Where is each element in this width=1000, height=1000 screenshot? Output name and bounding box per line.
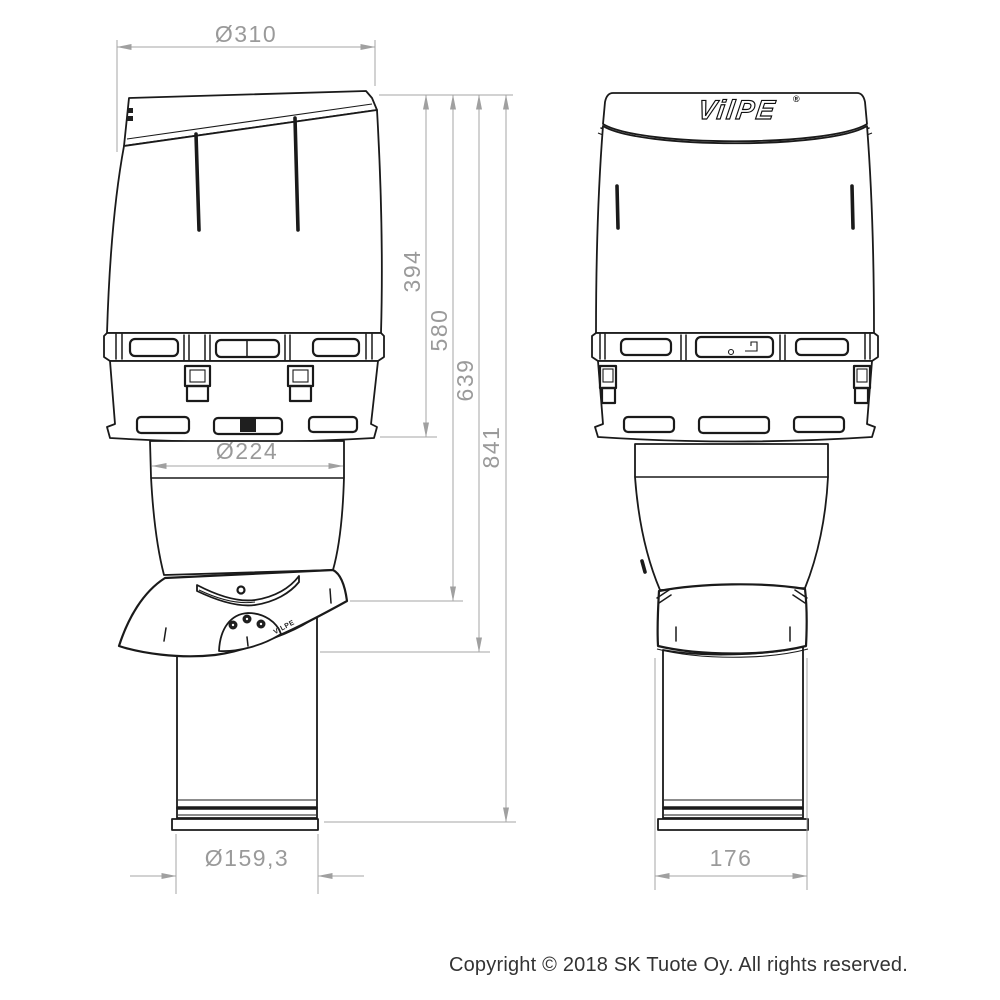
front-pipe: [663, 646, 803, 818]
copyright-text: Copyright © 2018 SK Tuote Oy. All rights…: [449, 954, 908, 976]
front-funnel: [635, 444, 828, 590]
front-roof-skirt: [658, 584, 807, 653]
front-hood-body: [596, 126, 874, 333]
dim-base-width-label: 176: [710, 845, 753, 871]
dim-height-to-seal-top-label: 580: [426, 309, 452, 352]
cap-slot-tab: [240, 419, 256, 432]
hood-side-slit: [617, 186, 618, 228]
vent-technical-drawing: VILPE VilPE ®: [0, 0, 1000, 1000]
dim-top-diameter-label: Ø310: [215, 21, 277, 47]
dim-pipe-diameter: Ø159,3: [130, 834, 364, 894]
dim-cap-height: 394: [380, 95, 437, 437]
dim-cap-bottom-diameter-label: Ø224: [216, 438, 278, 464]
lid-emboss-mark: [127, 108, 133, 113]
dim-height-to-seal-bottom-label: 639: [452, 359, 478, 402]
lid-emboss-mark: [127, 116, 133, 121]
front-cap-lower: [595, 361, 875, 442]
registered-trademark: ®: [793, 94, 800, 104]
front-view: VilPE ®: [592, 93, 878, 830]
hood-side-slit: [852, 186, 853, 228]
brand-logo: VilPE: [696, 94, 778, 125]
skirt-tick: [247, 637, 248, 646]
dim-cap-height-label: 394: [399, 250, 425, 293]
brand-logo-text: VilPE: [696, 94, 778, 125]
skirt-tick: [330, 589, 331, 603]
dim-total-height-label: 841: [478, 426, 504, 469]
dim-pipe-diameter-label: Ø159,3: [205, 845, 289, 871]
drawing-page: VILPE VilPE ®: [0, 0, 1000, 1000]
funnel-tab: [642, 561, 645, 572]
side-hood-body: [107, 110, 382, 333]
